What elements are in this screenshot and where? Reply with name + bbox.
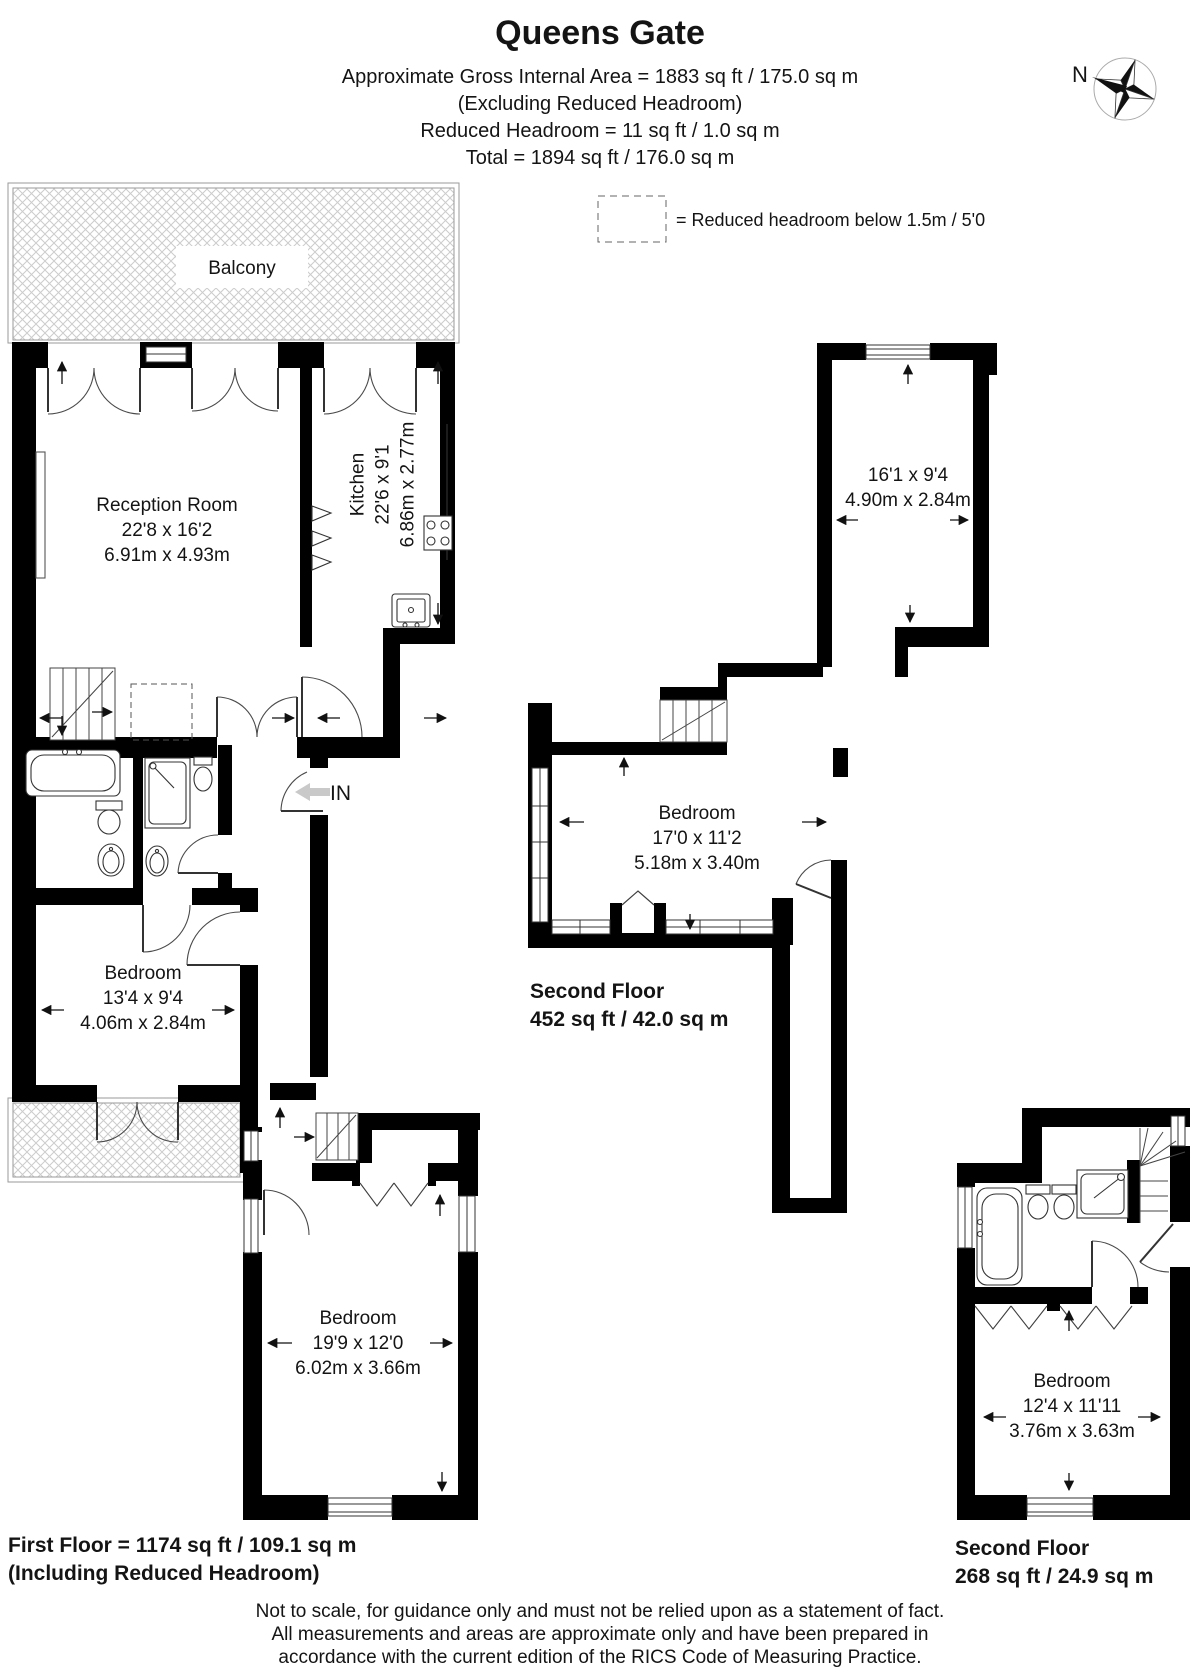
tap (978, 1220, 983, 1225)
room-metric: 4.90m x 2.84m (845, 488, 971, 513)
reception-stairs (50, 668, 115, 740)
dormer-bay (622, 891, 654, 905)
toilet-cistern (96, 801, 122, 810)
second-floor-room-label: 16'1 x 9'4 4.90m x 2.84m (845, 463, 971, 513)
reduced-headroom-line: Reduced Headroom = 11 sq ft / 1.0 sq m (420, 118, 779, 144)
area-line2: 268 sq ft / 24.9 sq m (955, 1563, 1153, 1591)
bidet (1054, 1195, 1074, 1219)
excluding-line: (Excluding Reduced Headroom) (458, 91, 743, 117)
room-metric: 6.02m x 3.66m (295, 1356, 421, 1381)
room-metric: 4.06m x 2.84m (80, 1011, 206, 1036)
toilet (98, 810, 120, 834)
room-name: Bedroom (295, 1306, 421, 1331)
room-imperial: 19'9 x 12'0 (295, 1331, 421, 1356)
wardrobe-doors (360, 1183, 428, 1206)
upper-floor-area-label: Second Floor 268 sq ft / 24.9 sq m (955, 1535, 1153, 1591)
second-floor-stairs (660, 700, 727, 742)
cabinet-door (312, 555, 331, 570)
room-metric: 5.18m x 3.40m (634, 851, 760, 876)
hall-stairs (316, 1113, 358, 1160)
room-name: Bedroom (1009, 1369, 1135, 1394)
entrance-label: IN (330, 781, 351, 806)
floorplan-page: Queens Gate Approximate Gross Internal A… (0, 0, 1200, 1672)
second-floor-bedroom-label: Bedroom 17'0 x 11'2 5.18m x 3.40m (634, 801, 760, 876)
tap (77, 750, 82, 755)
room-name: Bedroom (80, 961, 206, 986)
toilet-cistern (1026, 1185, 1050, 1194)
room-imperial: 16'1 x 9'4 (845, 463, 971, 488)
area-line1: Second Floor (955, 1535, 1153, 1563)
reduced-headroom-zone (131, 684, 192, 740)
second-floor-upper-plan (957, 1108, 1190, 1520)
toilet (194, 767, 212, 791)
tap (63, 750, 68, 755)
upper-walls (957, 1108, 1190, 1520)
balcony-label: Balcony (208, 256, 276, 281)
room-name: Kitchen (346, 410, 371, 560)
compass-north-label: N (1072, 62, 1088, 87)
upper-doors (1092, 1224, 1173, 1287)
shower-head (150, 763, 156, 769)
balcony-lower (8, 1098, 245, 1182)
disclaimer: Not to scale, for guidance only and must… (256, 1600, 945, 1669)
disclaimer-line1: Not to scale, for guidance only and must… (256, 1600, 945, 1623)
first-floor-area-label: First Floor = 1174 sq ft / 109.1 sq m (I… (8, 1532, 356, 1588)
bedroom2-label: Bedroom 19'9 x 12'0 6.02m x 3.66m (295, 1306, 421, 1381)
gross-area-line: Approximate Gross Internal Area = 1883 s… (342, 64, 858, 90)
room-imperial: 22'8 x 16'2 (96, 518, 238, 543)
reception-room-label: Reception Room 22'8 x 16'2 6.91m x 4.93m (96, 493, 238, 568)
bathroom-fixtures (26, 750, 212, 877)
bidet-back (1052, 1185, 1076, 1194)
page-title: Queens Gate (495, 14, 705, 52)
disclaimer-line3: accordance with the current edition of t… (256, 1646, 945, 1669)
shower-head (1118, 1174, 1125, 1181)
room-imperial: 17'0 x 11'2 (634, 826, 760, 851)
room-metric: 6.91m x 4.93m (96, 543, 238, 568)
total-area-line: Total = 1894 sq ft / 176.0 sq m (466, 145, 735, 171)
upper-bedroom-label: Bedroom 12'4 x 11'11 3.76m x 3.63m (1009, 1369, 1135, 1444)
room-metric: 3.76m x 3.63m (1009, 1419, 1135, 1444)
compass-icon (1086, 50, 1165, 129)
second-floor-area-label: Second Floor 452 sq ft / 42.0 sq m (530, 978, 728, 1034)
upper-bathroom-fixtures (977, 1170, 1128, 1285)
room-imperial: 22'6 x 9'1 (371, 410, 396, 560)
cabinet-door (312, 506, 331, 521)
kitchen-label: Kitchen 22'6 x 9'1 6.86m x 2.77m (346, 410, 421, 560)
toilet (1028, 1195, 1048, 1219)
area-line1: First Floor = 1174 sq ft / 109.1 sq m (8, 1532, 356, 1560)
disclaimer-line2: All measurements and areas are approxima… (256, 1623, 945, 1646)
hob (424, 516, 452, 550)
legend-dashed-box (598, 196, 666, 242)
tap (978, 1232, 983, 1237)
room-name: Reception Room (96, 493, 238, 518)
room-metric: 6.86m x 2.77m (396, 410, 421, 560)
room-name: Bedroom (634, 801, 760, 826)
room-imperial: 12'4 x 11'11 (1009, 1394, 1135, 1419)
cabinet-door (312, 531, 331, 546)
radiator (36, 452, 45, 578)
legend-text: = Reduced headroom below 1.5m / 5'0 (676, 208, 985, 233)
toilet-cistern (194, 757, 212, 765)
area-line2: (Including Reduced Headroom) (8, 1560, 356, 1588)
area-line2: 452 sq ft / 42.0 sq m (530, 1006, 728, 1034)
second-floor-doors (796, 860, 831, 898)
bedroom1-label: Bedroom 13'4 x 9'4 4.06m x 2.84m (80, 961, 206, 1036)
area-line1: Second Floor (530, 978, 728, 1006)
room-imperial: 13'4 x 9'4 (80, 986, 206, 1011)
entrance-arrow (295, 783, 330, 801)
